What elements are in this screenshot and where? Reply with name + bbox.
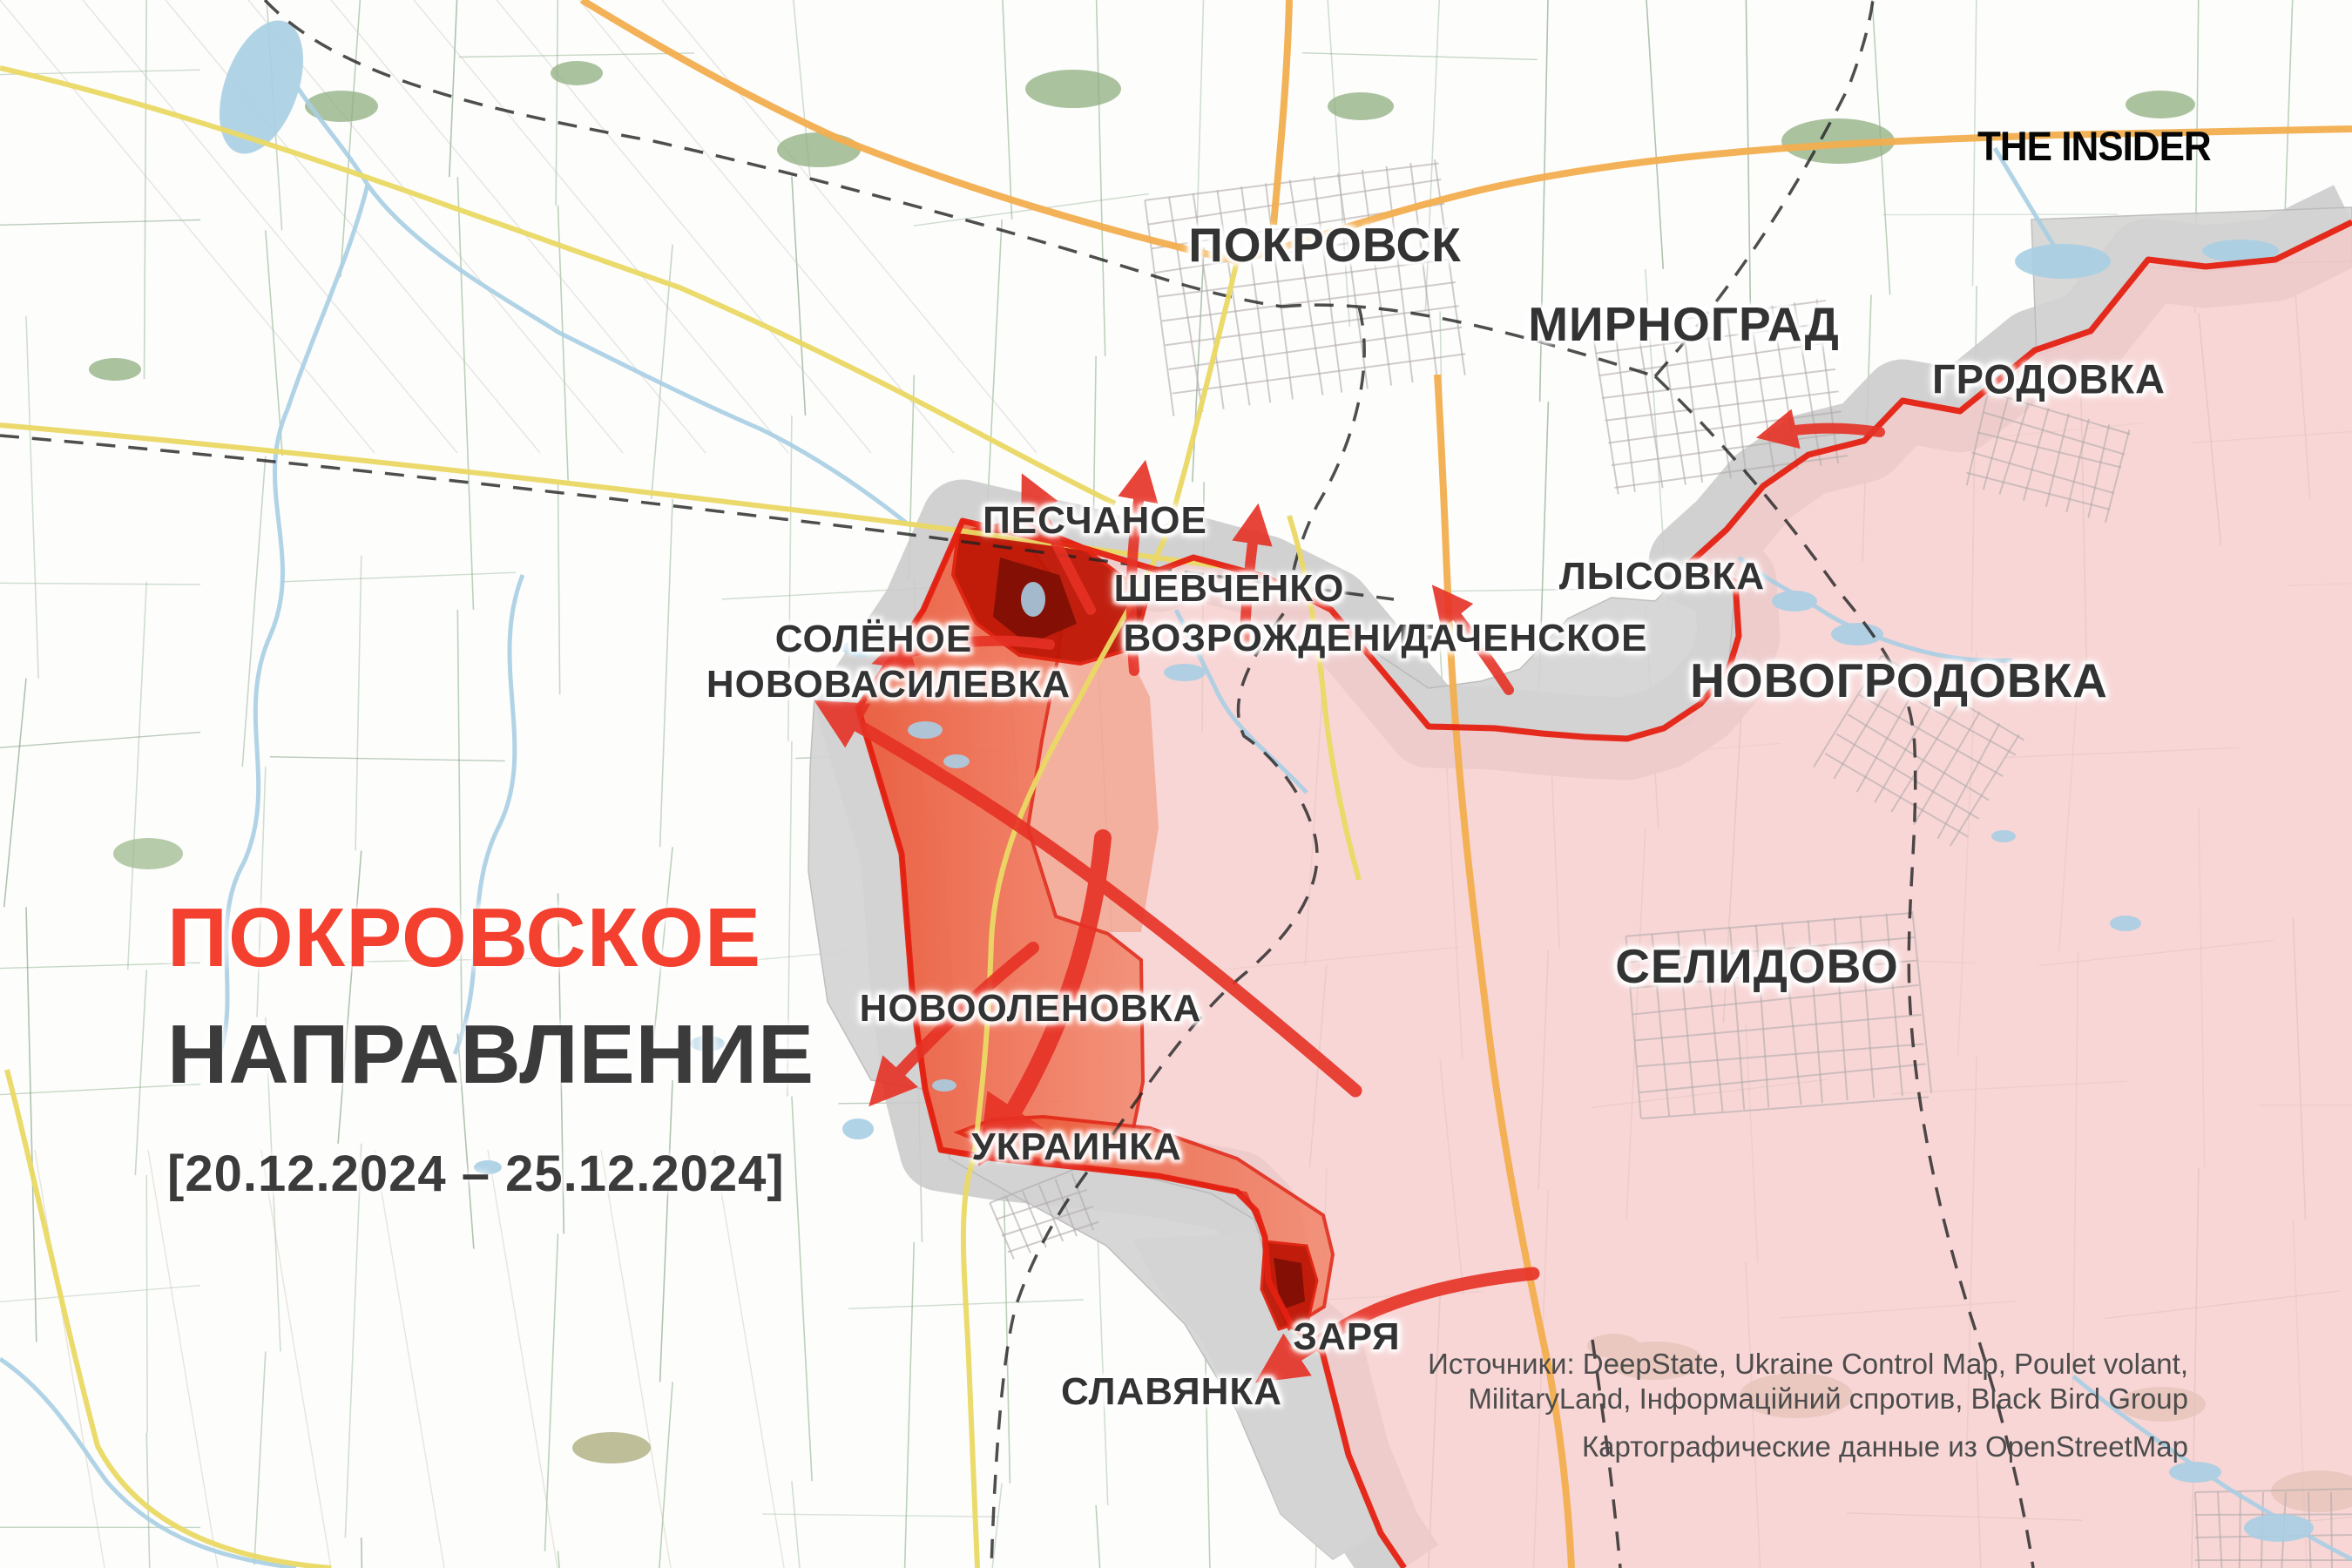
city-label-vozrozhdenie: ВОЗРОЖДЕНИЕ — [1123, 617, 1436, 660]
map-title-block: ПОКРОВСКОЕ НАПРАВЛЕНИЕ [20.12.2024 – 25.… — [167, 890, 814, 1203]
city-label-pokrovsk: ПОКРОВСК — [1188, 217, 1462, 273]
city-label-novoolenovka: НОВООЛЕНОВКА — [860, 987, 1202, 1031]
map-date-range: [20.12.2024 – 25.12.2024] — [167, 1145, 814, 1203]
city-label-mirnograd: МИРНОГРАД — [1528, 296, 1840, 352]
city-label-selidovo: СЕЛИДОВО — [1615, 938, 1899, 994]
map-screenshot: ПОКРОВСК МИРНОГРАД ГРОДОВКА ПЕСЧАНОЕ ШЕВ… — [0, 0, 2352, 1568]
sources-line-3: Картографические данные из OpenStreetMap — [1428, 1429, 2188, 1464]
map-artwork — [0, 0, 2352, 1568]
map-title-main: НАПРАВЛЕНИЕ — [167, 1007, 814, 1103]
sources-credit: Источники: DeepState, Ukraine Control Ma… — [1428, 1347, 2188, 1464]
city-label-zarya: ЗАРЯ — [1293, 1315, 1400, 1359]
city-label-novovasilevka: НОВОВАСИЛЕВКА — [706, 663, 1071, 706]
city-label-shevchenko: ШЕВЧЕНКО — [1114, 567, 1345, 611]
city-label-grodovka: ГРОДОВКА — [1932, 355, 2166, 403]
sources-line-1: Источники: DeepState, Ukraine Control Ma… — [1428, 1347, 2188, 1382]
the-insider-logo: THE INSIDER — [1977, 124, 2211, 171]
city-label-ukrainka: УКРАИНКА — [971, 1125, 1182, 1169]
city-label-solenoe: СОЛЁНОЕ — [775, 618, 972, 661]
sources-line-2: MilitaryLand, Інформаційний спротив, Bla… — [1428, 1382, 2188, 1416]
city-label-dachenskoe: ДАЧЕНСКОЕ — [1401, 617, 1647, 660]
map-title-accent: ПОКРОВСКОЕ — [167, 890, 814, 986]
city-label-lysovka: ЛЫСОВКА — [1559, 555, 1765, 598]
city-label-slavyanka: СЛАВЯНКА — [1061, 1370, 1282, 1414]
city-label-novogrodovka: НОВОГРОДОВКА — [1690, 652, 2108, 708]
city-label-peschanoe: ПЕСЧАНОЕ — [983, 499, 1207, 543]
